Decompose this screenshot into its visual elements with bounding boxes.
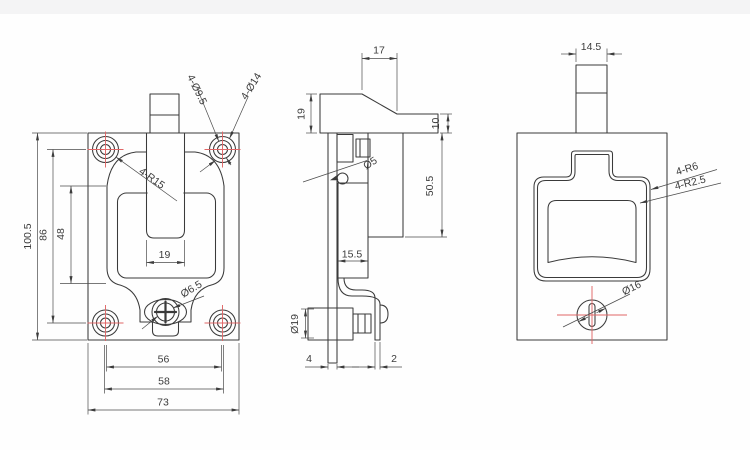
callout-pawl-diameter: Ø19 [289, 314, 301, 334]
callout-mount-hole: 4-Ø9.5 [184, 73, 209, 107]
front-view: 100.5 86 48 19 56 58 [22, 71, 264, 415]
dim-recess-width: 58 [158, 376, 170, 388]
side-pawl [308, 308, 371, 340]
back-recess-inner [538, 155, 647, 278]
dim-tab-width: 14.5 [581, 41, 602, 53]
dim-recess-height: 48 [55, 228, 67, 240]
mount-hole-top-left [88, 132, 124, 168]
side-pin-hole [337, 173, 348, 184]
dim-body-depth: 50.5 [424, 176, 436, 197]
callout-counterbore: 4-Ø14 [239, 71, 265, 102]
dim-overall-width: 73 [157, 397, 169, 409]
dim-arm-thickness: 2 [391, 353, 397, 365]
side-mounting-plate [328, 133, 337, 363]
dim-overall-height: 100.5 [22, 223, 34, 249]
side-head [320, 94, 438, 133]
dim-cam-width: 15.5 [342, 249, 363, 261]
front-handle-tab [150, 94, 179, 133]
mount-hole-top-right [205, 132, 241, 168]
dim-slot-width: 19 [159, 249, 171, 261]
dim-hole-pitch-vertical: 86 [38, 229, 50, 241]
side-view: 17 19 10 50.5 15.5 Ø19 [289, 45, 452, 370]
back-lock-cylinder [557, 286, 627, 344]
mount-hole-bottom-left [88, 305, 124, 341]
side-hook-arm [338, 278, 388, 340]
side-housing [368, 133, 403, 237]
side-upper-blocks [337, 135, 370, 163]
engineering-drawing-canvas: 100.5 86 48 19 56 58 [0, 0, 750, 450]
dim-head-depth: 17 [373, 45, 385, 57]
dim-head-height: 19 [296, 108, 308, 120]
dim-hole-pitch-horizontal: 56 [158, 354, 170, 366]
front-dimensions: 100.5 86 48 19 56 58 [22, 133, 239, 415]
drawing-page: 100.5 86 48 19 56 58 [0, 0, 750, 450]
front-callouts: 4-R15 4-Ø9.5 4-Ø14 Ø6.5 [116, 71, 264, 329]
back-dimensions: 14.5 4-R6 4-R2.5 Ø16 [561, 41, 721, 327]
mount-hole-bottom-right [205, 305, 241, 341]
back-recess-floor [548, 201, 636, 263]
side-cam-slide [338, 183, 368, 278]
dim-head-step: 10 [430, 118, 442, 130]
back-handle-tab [576, 65, 607, 133]
back-view: 14.5 4-R6 4-R2.5 Ø16 [517, 41, 721, 344]
dim-plate-thickness: 4 [306, 353, 312, 365]
